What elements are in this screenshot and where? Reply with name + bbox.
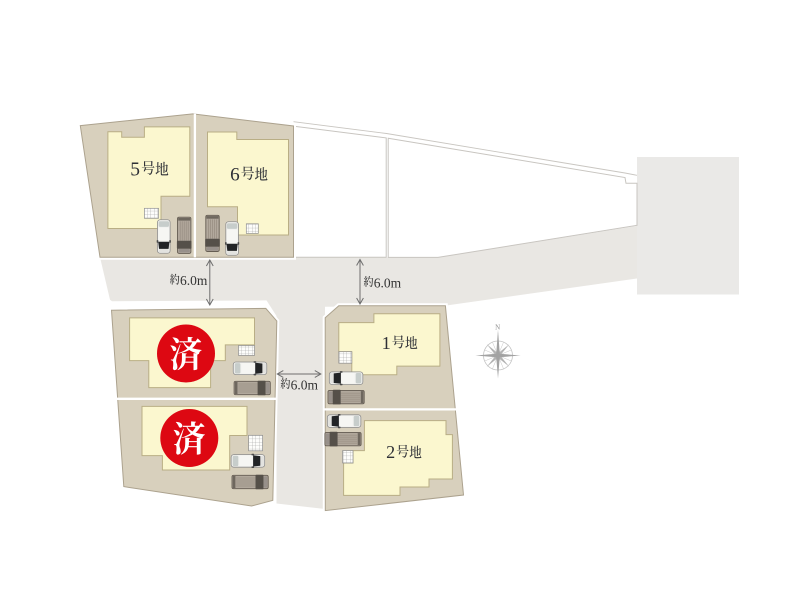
svg-text:N: N: [495, 324, 500, 332]
svg-text:6.0m: 6.0m: [180, 273, 208, 288]
svg-text:6: 6: [230, 165, 240, 186]
svg-text:6.0m: 6.0m: [291, 377, 319, 392]
svg-text:1: 1: [382, 333, 391, 353]
svg-text:5: 5: [130, 159, 140, 180]
svg-text:2: 2: [386, 442, 395, 462]
svg-text:6.0m: 6.0m: [374, 275, 402, 290]
